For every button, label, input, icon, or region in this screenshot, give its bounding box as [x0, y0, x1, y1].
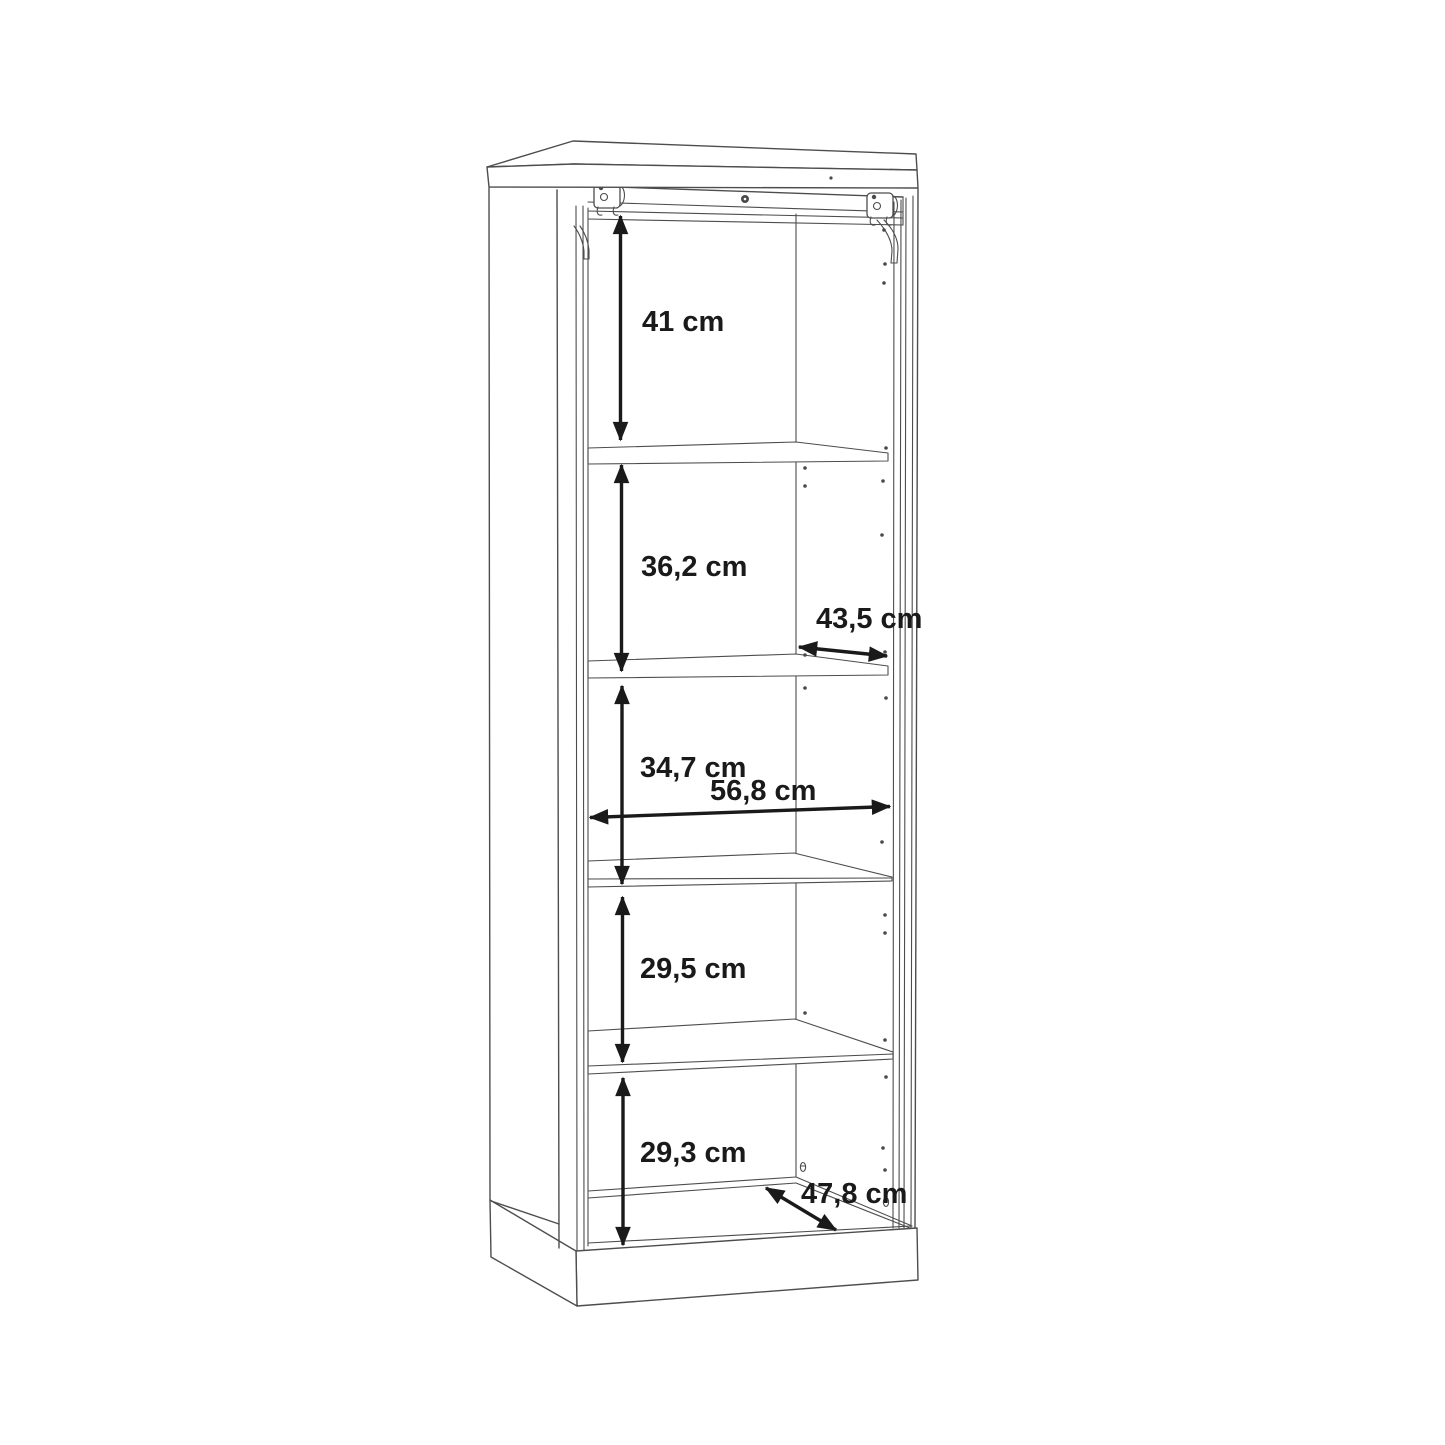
rail-bottom-edge: [588, 219, 903, 225]
back-panel-bottom-edge: [588, 1177, 796, 1191]
pin-hole: [880, 840, 884, 844]
pin-hole: [803, 653, 807, 657]
dimension-shelf-depth: 43,5 cm: [799, 603, 922, 656]
bracket-right-pin: [872, 195, 876, 199]
right-stile-line-2: [904, 198, 906, 1228]
floor-back-edge: [588, 1183, 796, 1198]
right-stile-line-1: [911, 196, 913, 1228]
anti-tip-strap-right: [877, 220, 898, 263]
pin-hole: [882, 281, 886, 285]
interior-right-wall-edge: [893, 202, 894, 1228]
rail-center-screw-hole: [744, 198, 747, 201]
pin-hole: [803, 1011, 807, 1015]
left-stile-line-1: [576, 206, 577, 1250]
pin-hole: [881, 479, 885, 483]
left-side-outer-edge: [489, 188, 490, 1200]
plinth-front-face: [576, 1228, 918, 1306]
pin-hole: [883, 1168, 887, 1172]
shelf-1: [588, 442, 888, 464]
dimension-arrow-43-5cm: [799, 647, 887, 656]
dimension-label-56-8cm: 56,8 cm: [710, 775, 816, 807]
dimension-label-43-5cm: 43,5 cm: [816, 603, 922, 635]
pin-hole: [881, 1146, 885, 1150]
dimension-interior-width: 56,8 cm: [590, 775, 890, 818]
cabinet-crown: [487, 141, 918, 188]
top-rail: [574, 183, 903, 263]
wall-bracket-right: [867, 193, 898, 225]
cabinet-interior: [588, 214, 912, 1243]
dimension-section2: 36,2 cm: [622, 465, 748, 671]
pin-hole: [884, 696, 888, 700]
dimension-label-41cm: 41 cm: [642, 306, 724, 338]
rail-mid-edge-2: [588, 211, 903, 218]
pin-hole: [880, 533, 884, 537]
dimension-label-36-2cm: 36,2 cm: [641, 551, 747, 583]
diagram-page: 41 cm 36,2 cm 43,5 cm 34,7 cm 56,8 cm 29…: [0, 0, 1445, 1445]
dimension-section5: 29,3 cm: [623, 1078, 746, 1245]
pin-hole: [803, 484, 807, 488]
dimension-base-depth: 47,8 cm: [766, 1178, 907, 1230]
pin-hole: [882, 228, 886, 232]
dimension-section1: 41 cm: [621, 216, 725, 440]
dimension-label-29-5cm: 29,5 cm: [640, 953, 746, 985]
pin-hole: [884, 446, 888, 450]
shelf-2: [588, 654, 888, 678]
crown-screw: [829, 176, 832, 179]
rail-mid-edge-1: [588, 202, 903, 212]
cabinet-carcass: [489, 188, 918, 1250]
cabinet-dimension-diagram: 41 cm 36,2 cm 43,5 cm 34,7 cm 56,8 cm 29…: [0, 0, 1445, 1445]
left-stile-line-2: [583, 206, 584, 1250]
pin-hole: [883, 650, 887, 654]
pin-hole: [883, 1038, 887, 1042]
shelf-3: [588, 853, 892, 887]
pin-hole: [883, 931, 887, 935]
dimension-label-29-3cm: 29,3 cm: [640, 1137, 746, 1169]
base-plinth: [490, 1200, 918, 1306]
dimension-arrow-56-8cm: [590, 807, 890, 818]
pin-hole: [803, 466, 807, 470]
right-side-outer-edge: [915, 189, 918, 1228]
left-side-front-edge: [557, 190, 559, 1248]
pin-hole: [883, 262, 887, 266]
pin-hole: [803, 686, 807, 690]
pin-hole: [884, 1075, 888, 1079]
shelf-4: [588, 1019, 893, 1074]
right-stile-line-3: [899, 200, 901, 1228]
dimension-label-47-8cm: 47,8 cm: [801, 1178, 907, 1210]
pin-hole: [883, 913, 887, 917]
cam-lock-hole: [800, 1163, 805, 1172]
